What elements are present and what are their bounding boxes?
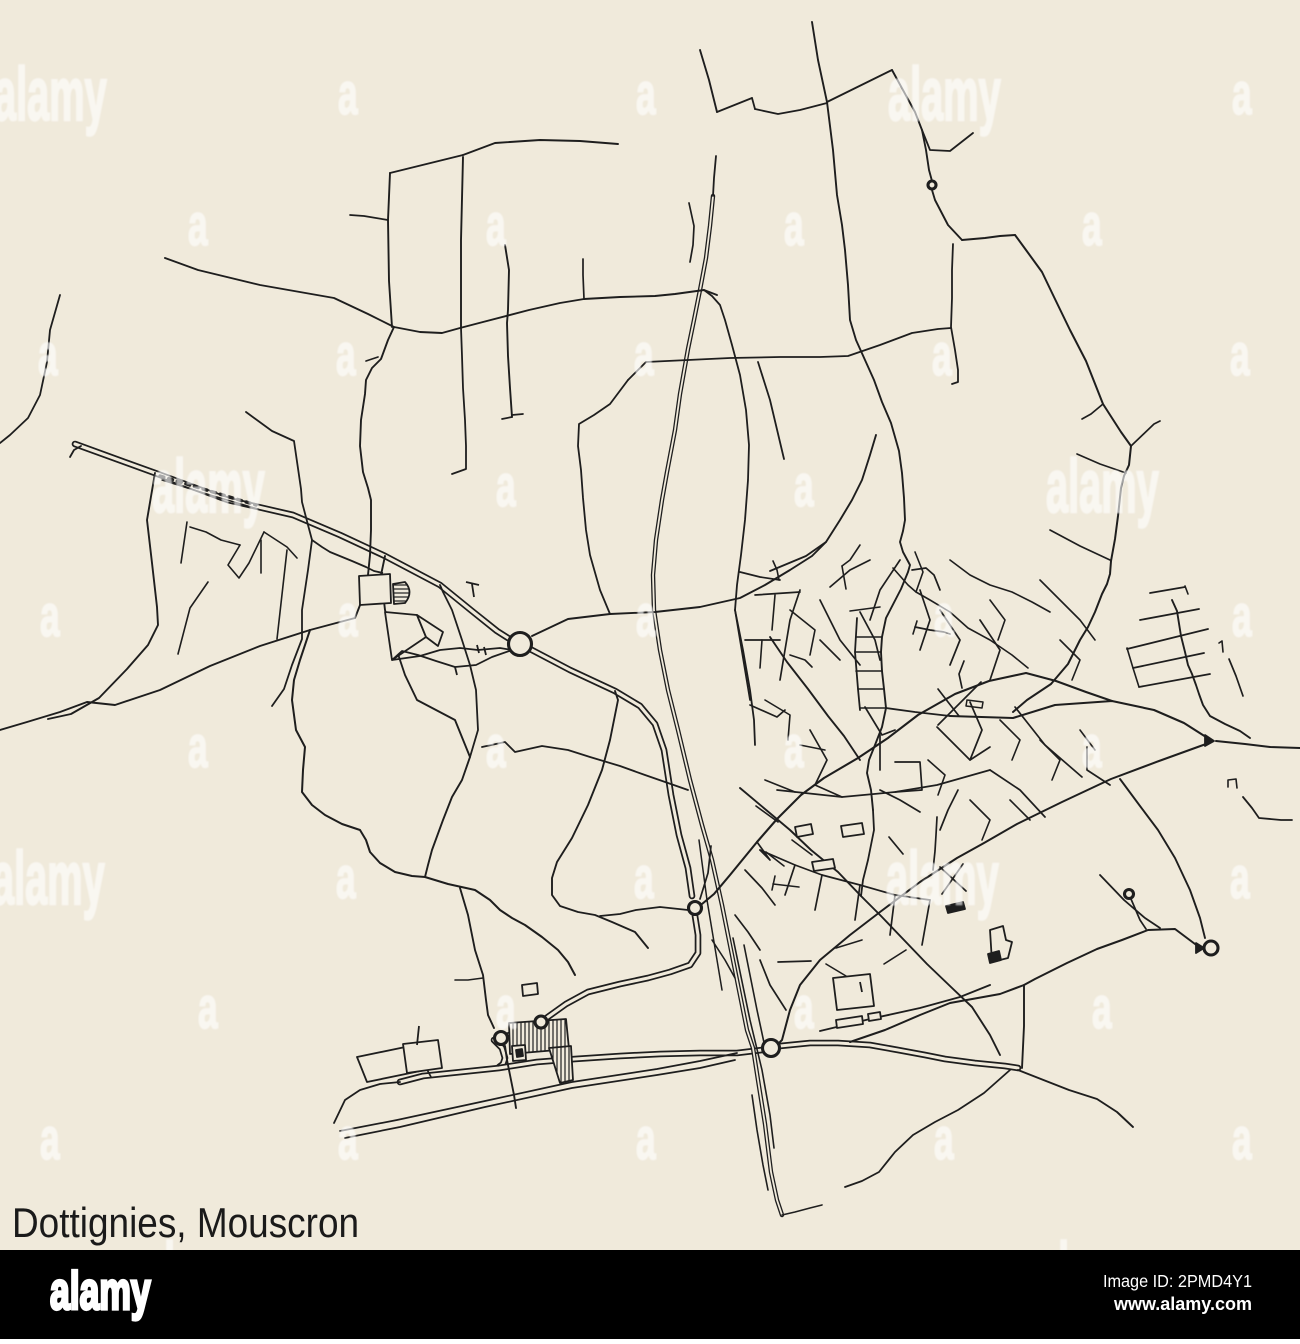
- svg-text:a: a: [1082, 715, 1102, 780]
- svg-text:a: a: [486, 193, 506, 258]
- svg-text:a: a: [634, 846, 654, 911]
- svg-text:a: a: [336, 323, 356, 388]
- svg-text:a: a: [1232, 584, 1252, 649]
- svg-text:alamy: alamy: [0, 53, 107, 137]
- svg-text:alamy: alamy: [886, 837, 999, 921]
- svg-text:alamy: alamy: [888, 53, 1001, 137]
- svg-text:a: a: [338, 584, 358, 649]
- svg-text:a: a: [496, 454, 516, 519]
- svg-text:a: a: [1082, 193, 1102, 258]
- svg-text:a: a: [1092, 976, 1112, 1041]
- svg-text:a: a: [198, 976, 218, 1041]
- svg-text:Dottignies, Mouscron: Dottignies, Mouscron: [12, 1200, 359, 1247]
- svg-text:a: a: [486, 715, 506, 780]
- svg-text:a: a: [1232, 1107, 1252, 1172]
- svg-text:alamy: alamy: [0, 837, 105, 921]
- svg-text:a: a: [1232, 62, 1252, 127]
- svg-text:a: a: [40, 584, 60, 649]
- svg-text:a: a: [784, 715, 804, 780]
- svg-text:a: a: [634, 323, 654, 388]
- svg-text:a: a: [1230, 846, 1250, 911]
- svg-text:a: a: [188, 193, 208, 258]
- svg-text:a: a: [188, 715, 208, 780]
- svg-text:a: a: [40, 1107, 60, 1172]
- svg-text:Image ID: 2PMD4Y1: Image ID: 2PMD4Y1: [1103, 1271, 1252, 1291]
- svg-text:a: a: [794, 454, 814, 519]
- svg-text:a: a: [794, 976, 814, 1041]
- svg-text:a: a: [636, 1107, 656, 1172]
- svg-text:a: a: [784, 193, 804, 258]
- svg-text:alamy: alamy: [50, 1261, 151, 1321]
- svg-text:alamy: alamy: [152, 445, 265, 529]
- svg-text:a: a: [496, 976, 516, 1041]
- svg-text:a: a: [934, 1107, 954, 1172]
- svg-text:a: a: [38, 323, 58, 388]
- svg-text:a: a: [1230, 323, 1250, 388]
- svg-text:a: a: [336, 846, 356, 911]
- svg-text:a: a: [338, 62, 358, 127]
- svg-text:a: a: [932, 323, 952, 388]
- svg-text:a: a: [636, 584, 656, 649]
- svg-text:www.alamy.com: www.alamy.com: [1113, 1294, 1252, 1314]
- svg-text:alamy: alamy: [1046, 445, 1159, 529]
- svg-text:a: a: [934, 584, 954, 649]
- svg-text:a: a: [338, 1107, 358, 1172]
- svg-text:a: a: [636, 62, 656, 127]
